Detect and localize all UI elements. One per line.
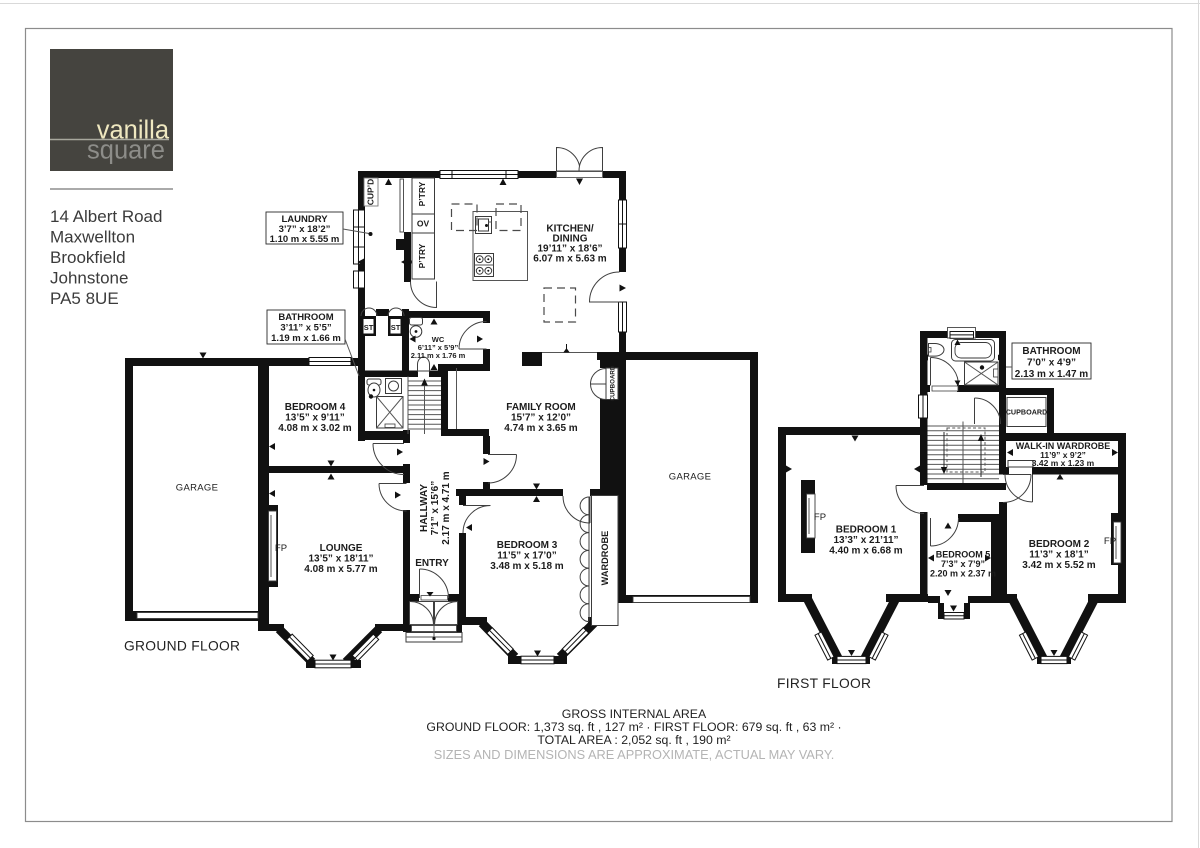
svg-text:13’5” x 9’11”: 13’5” x 9’11”: [285, 413, 345, 424]
svg-text:BEDROOM 2: BEDROOM 2: [1029, 539, 1090, 550]
svg-text:BATHROOM: BATHROOM: [1022, 346, 1080, 357]
svg-text:14 Albert Road: 14 Albert Road: [50, 207, 162, 226]
svg-text:BEDROOM 1: BEDROOM 1: [836, 525, 897, 536]
svg-text:ENTRY: ENTRY: [415, 558, 449, 569]
svg-text:1.19 m x 1.66 m: 1.19 m x 1.66 m: [271, 333, 341, 344]
svg-text:GARAGE: GARAGE: [669, 472, 711, 483]
svg-text:7’1” x 15’6”: 7’1” x 15’6”: [430, 481, 441, 535]
svg-text:PA5 8UE: PA5 8UE: [50, 289, 119, 308]
svg-text:CUP’D: CUP’D: [366, 179, 376, 205]
svg-text:1.10 m x 5.55 m: 1.10 m x 5.55 m: [270, 234, 340, 245]
svg-text:GROUND FLOOR: GROUND FLOOR: [124, 639, 240, 654]
svg-text:13’5” x 18’11”: 13’5” x 18’11”: [308, 554, 373, 565]
svg-text:4.08 m x 5.77 m: 4.08 m x 5.77 m: [304, 564, 377, 575]
svg-text:BEDROOM 5: BEDROOM 5: [936, 550, 991, 560]
svg-text:3.42 m x 5.52 m: 3.42 m x 5.52 m: [1022, 560, 1095, 571]
svg-text:CUPBOARD: CUPBOARD: [1006, 408, 1048, 417]
svg-text:13’3” x 21’11”: 13’3” x 21’11”: [833, 535, 898, 546]
svg-text:11’5” x 17’0”: 11’5” x 17’0”: [497, 551, 557, 562]
svg-text:11’3” x 18’1”: 11’3” x 18’1”: [1029, 550, 1089, 561]
svg-text:OV: OV: [417, 219, 430, 229]
svg-text:4.40 m x 6.68 m: 4.40 m x 6.68 m: [829, 546, 902, 557]
svg-text:square: square: [87, 137, 165, 165]
svg-text:GARAGE: GARAGE: [176, 483, 218, 494]
svg-text:4.74 m x 3.65 m: 4.74 m x 3.65 m: [504, 423, 577, 434]
svg-text:7’3” x 7’9”: 7’3” x 7’9”: [941, 559, 985, 569]
svg-text:FP: FP: [814, 512, 826, 523]
svg-text:GROSS INTERNAL AREA: GROSS INTERNAL AREA: [562, 707, 707, 721]
svg-text:2.13 m x 1.47 m: 2.13 m x 1.47 m: [1015, 369, 1088, 380]
svg-text:Brookfield: Brookfield: [50, 248, 126, 267]
svg-text:ST: ST: [364, 323, 374, 332]
svg-text:BATHROOM: BATHROOM: [278, 312, 333, 323]
svg-text:P’TRY: P’TRY: [417, 243, 427, 268]
svg-text:GROUND FLOOR: 1,373 sq. ft , 1: GROUND FLOOR: 1,373 sq. ft , 127 m² · FI…: [426, 720, 841, 734]
svg-text:2.11 m x 1.76 m: 2.11 m x 1.76 m: [411, 351, 466, 360]
svg-text:FP: FP: [1104, 536, 1116, 547]
svg-text:HALLWAY: HALLWAY: [419, 484, 430, 532]
svg-text:Maxwellton: Maxwellton: [50, 228, 135, 247]
svg-text:3’11” x 5’5”: 3’11” x 5’5”: [280, 323, 331, 334]
svg-text:CUPBOARD: CUPBOARD: [610, 365, 617, 401]
svg-text:15’7” x 12’0”: 15’7” x 12’0”: [511, 413, 571, 424]
svg-text:BEDROOM 3: BEDROOM 3: [497, 540, 558, 551]
svg-text:TOTAL AREA : 2,052 sq. ft , 19: TOTAL AREA : 2,052 sq. ft , 190 m²: [537, 733, 730, 747]
svg-text:3.48 m x 5.18 m: 3.48 m x 5.18 m: [490, 561, 563, 572]
svg-text:3.42 m x 1.23 m: 3.42 m x 1.23 m: [1032, 458, 1095, 468]
svg-text:7’0” x 4’9”: 7’0” x 4’9”: [1027, 358, 1076, 369]
svg-text:Johnstone: Johnstone: [50, 269, 128, 288]
svg-text:FIRST FLOOR: FIRST FLOOR: [777, 676, 871, 691]
svg-text:2.20 m x 2.37 m: 2.20 m x 2.37 m: [930, 569, 996, 579]
svg-text:FAMILY ROOM: FAMILY ROOM: [506, 402, 575, 413]
svg-text:P’TRY: P’TRY: [417, 181, 427, 206]
svg-text:2.17 m x 4.71 m: 2.17 m x 4.71 m: [441, 471, 452, 544]
svg-text:FP: FP: [275, 543, 287, 554]
svg-text:4.08 m x 3.02 m: 4.08 m x 3.02 m: [278, 423, 351, 434]
svg-text:BEDROOM 4: BEDROOM 4: [285, 402, 346, 413]
svg-text:SIZES AND DIMENSIONS ARE APPRO: SIZES AND DIMENSIONS ARE APPROXIMATE, AC…: [434, 747, 835, 762]
svg-text:LOUNGE: LOUNGE: [320, 543, 363, 554]
svg-text:ST: ST: [391, 323, 401, 332]
svg-text:WARDROBE: WARDROBE: [600, 531, 610, 586]
svg-text:6.07 m x 5.63 m: 6.07 m x 5.63 m: [533, 254, 606, 265]
